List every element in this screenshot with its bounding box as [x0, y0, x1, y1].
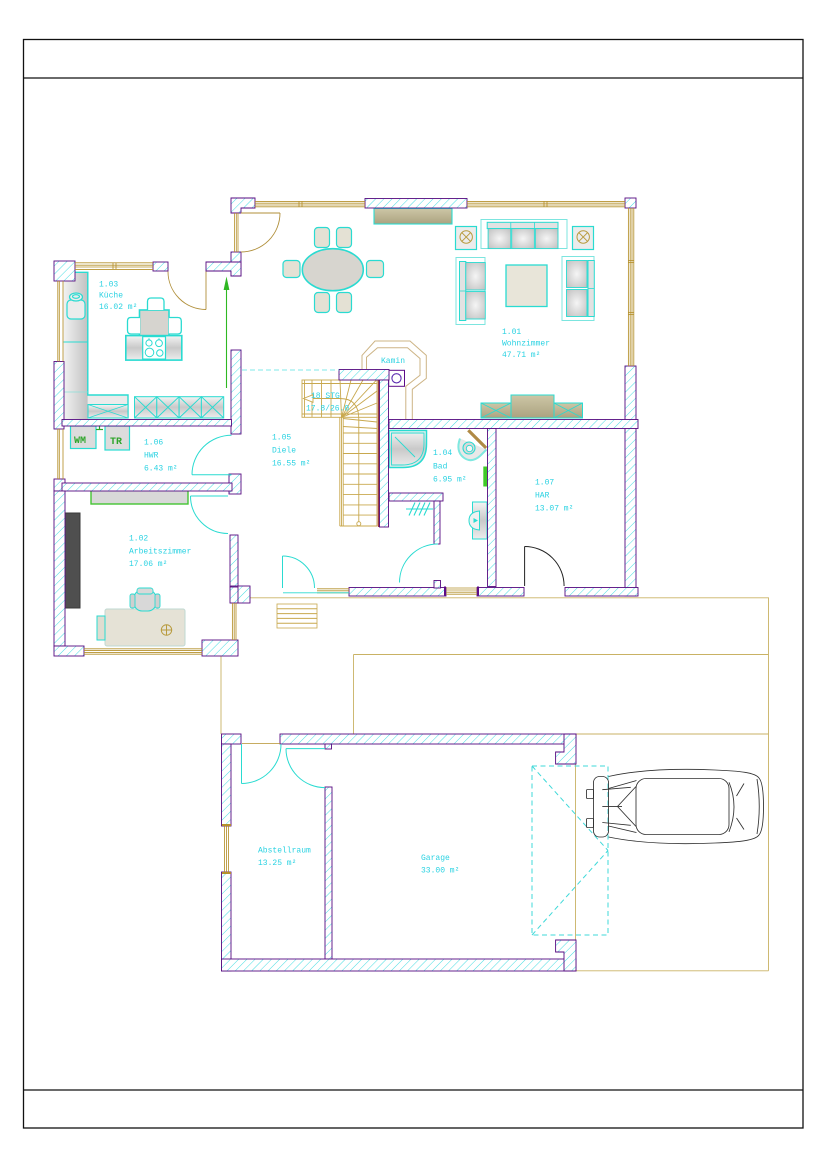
- svg-text:6.95 m²: 6.95 m²: [433, 476, 467, 485]
- svg-text:Wohnzimmer: Wohnzimmer: [502, 340, 550, 349]
- svg-text:1.01: 1.01: [502, 328, 521, 337]
- svg-text:TR: TR: [110, 437, 122, 448]
- svg-text:17.8/26.0: 17.8/26.0: [306, 405, 349, 414]
- svg-text:13.07 m²: 13.07 m²: [535, 505, 573, 514]
- svg-text:Garage: Garage: [421, 854, 450, 863]
- svg-text:1.06: 1.06: [144, 439, 163, 448]
- svg-text:Küche: Küche: [99, 292, 123, 301]
- svg-text:Abstellraum: Abstellraum: [258, 847, 311, 856]
- svg-text:1.03: 1.03: [99, 281, 118, 290]
- svg-text:1.02: 1.02: [129, 535, 148, 544]
- svg-text:18 STG: 18 STG: [311, 392, 340, 401]
- svg-text:1.04: 1.04: [433, 449, 452, 458]
- svg-text:1.07: 1.07: [535, 479, 554, 488]
- svg-text:13.25 m²: 13.25 m²: [258, 859, 296, 868]
- svg-text:1.05: 1.05: [272, 434, 291, 443]
- svg-text:16.02 m²: 16.02 m²: [99, 303, 137, 312]
- svg-text:17.06 m²: 17.06 m²: [129, 560, 167, 569]
- svg-text:Arbeitszimmer: Arbeitszimmer: [129, 548, 192, 557]
- svg-text:HWR: HWR: [144, 452, 159, 461]
- svg-text:Kamin: Kamin: [381, 357, 405, 366]
- svg-text:47.71 m²: 47.71 m²: [502, 351, 540, 360]
- svg-text:Bad: Bad: [433, 463, 448, 472]
- svg-text:HAR: HAR: [535, 492, 550, 501]
- svg-text:WM: WM: [74, 436, 86, 447]
- svg-text:16.55 m²: 16.55 m²: [272, 460, 310, 469]
- svg-text:6.43 m²: 6.43 m²: [144, 465, 178, 474]
- svg-text:Diele: Diele: [272, 447, 296, 456]
- svg-text:33.00 m²: 33.00 m²: [421, 867, 459, 876]
